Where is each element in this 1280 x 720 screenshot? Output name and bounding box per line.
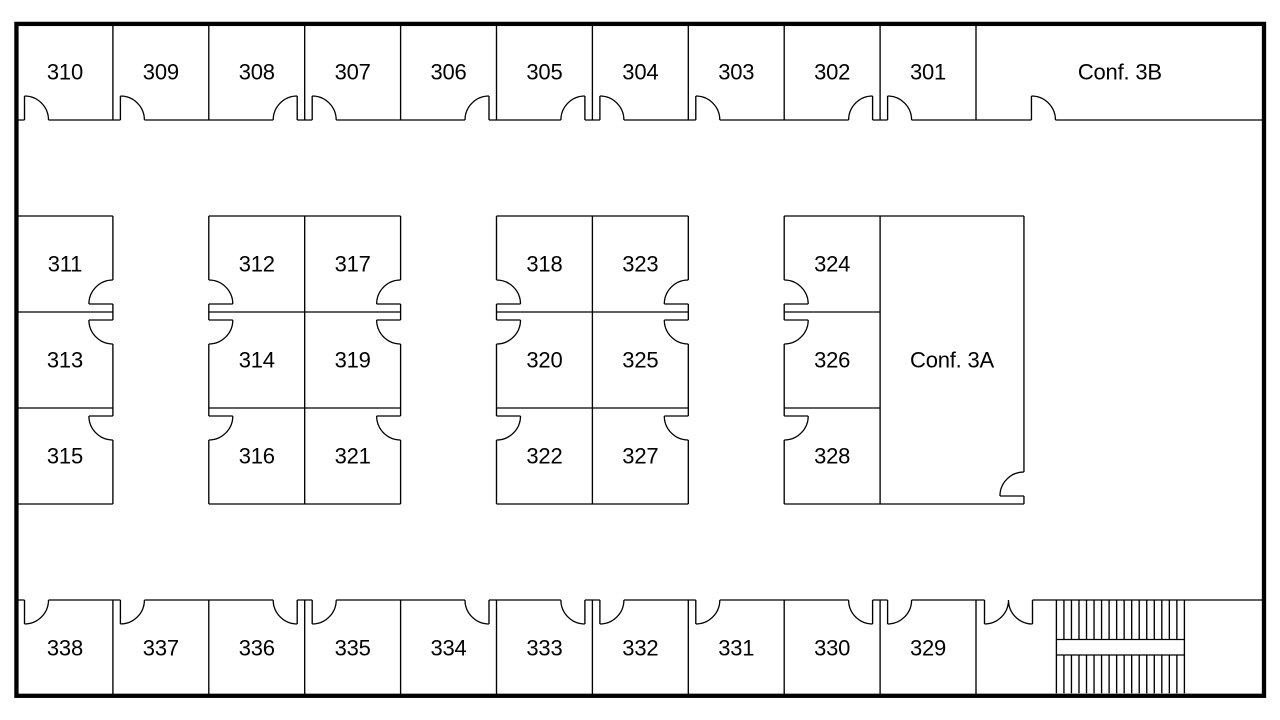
svg-text:332: 332 (622, 636, 658, 661)
svg-text:336: 336 (239, 636, 275, 661)
svg-text:326: 326 (814, 348, 850, 373)
svg-text:309: 309 (143, 60, 179, 85)
svg-text:322: 322 (526, 444, 562, 469)
svg-text:316: 316 (239, 444, 275, 469)
svg-text:310: 310 (47, 60, 83, 85)
svg-text:337: 337 (143, 636, 179, 661)
svg-text:304: 304 (622, 60, 658, 85)
svg-text:333: 333 (526, 636, 562, 661)
svg-text:315: 315 (47, 444, 83, 469)
svg-text:335: 335 (335, 636, 371, 661)
svg-text:338: 338 (47, 636, 83, 661)
svg-text:306: 306 (430, 60, 466, 85)
svg-text:303: 303 (718, 60, 754, 85)
svg-text:308: 308 (239, 60, 275, 85)
svg-text:320: 320 (526, 348, 562, 373)
svg-text:Conf. 3B: Conf. 3B (1078, 60, 1162, 85)
svg-text:327: 327 (622, 444, 658, 469)
svg-text:313: 313 (47, 348, 83, 373)
svg-text:317: 317 (335, 252, 371, 277)
svg-text:311: 311 (48, 252, 82, 277)
svg-text:334: 334 (430, 636, 466, 661)
svg-text:Conf. 3A: Conf. 3A (910, 348, 995, 373)
svg-text:330: 330 (814, 636, 850, 661)
svg-text:314: 314 (239, 348, 275, 373)
svg-text:321: 321 (335, 444, 371, 469)
svg-text:318: 318 (526, 252, 562, 277)
svg-text:324: 324 (814, 252, 850, 277)
svg-text:312: 312 (239, 252, 275, 277)
svg-text:323: 323 (622, 252, 658, 277)
svg-text:325: 325 (622, 348, 658, 373)
svg-text:328: 328 (814, 444, 850, 469)
svg-text:305: 305 (526, 60, 562, 85)
svg-text:331: 331 (718, 636, 754, 661)
svg-text:329: 329 (910, 636, 946, 661)
svg-text:302: 302 (814, 60, 850, 85)
svg-text:319: 319 (335, 348, 371, 373)
svg-text:307: 307 (335, 60, 371, 85)
svg-text:301: 301 (910, 60, 946, 85)
